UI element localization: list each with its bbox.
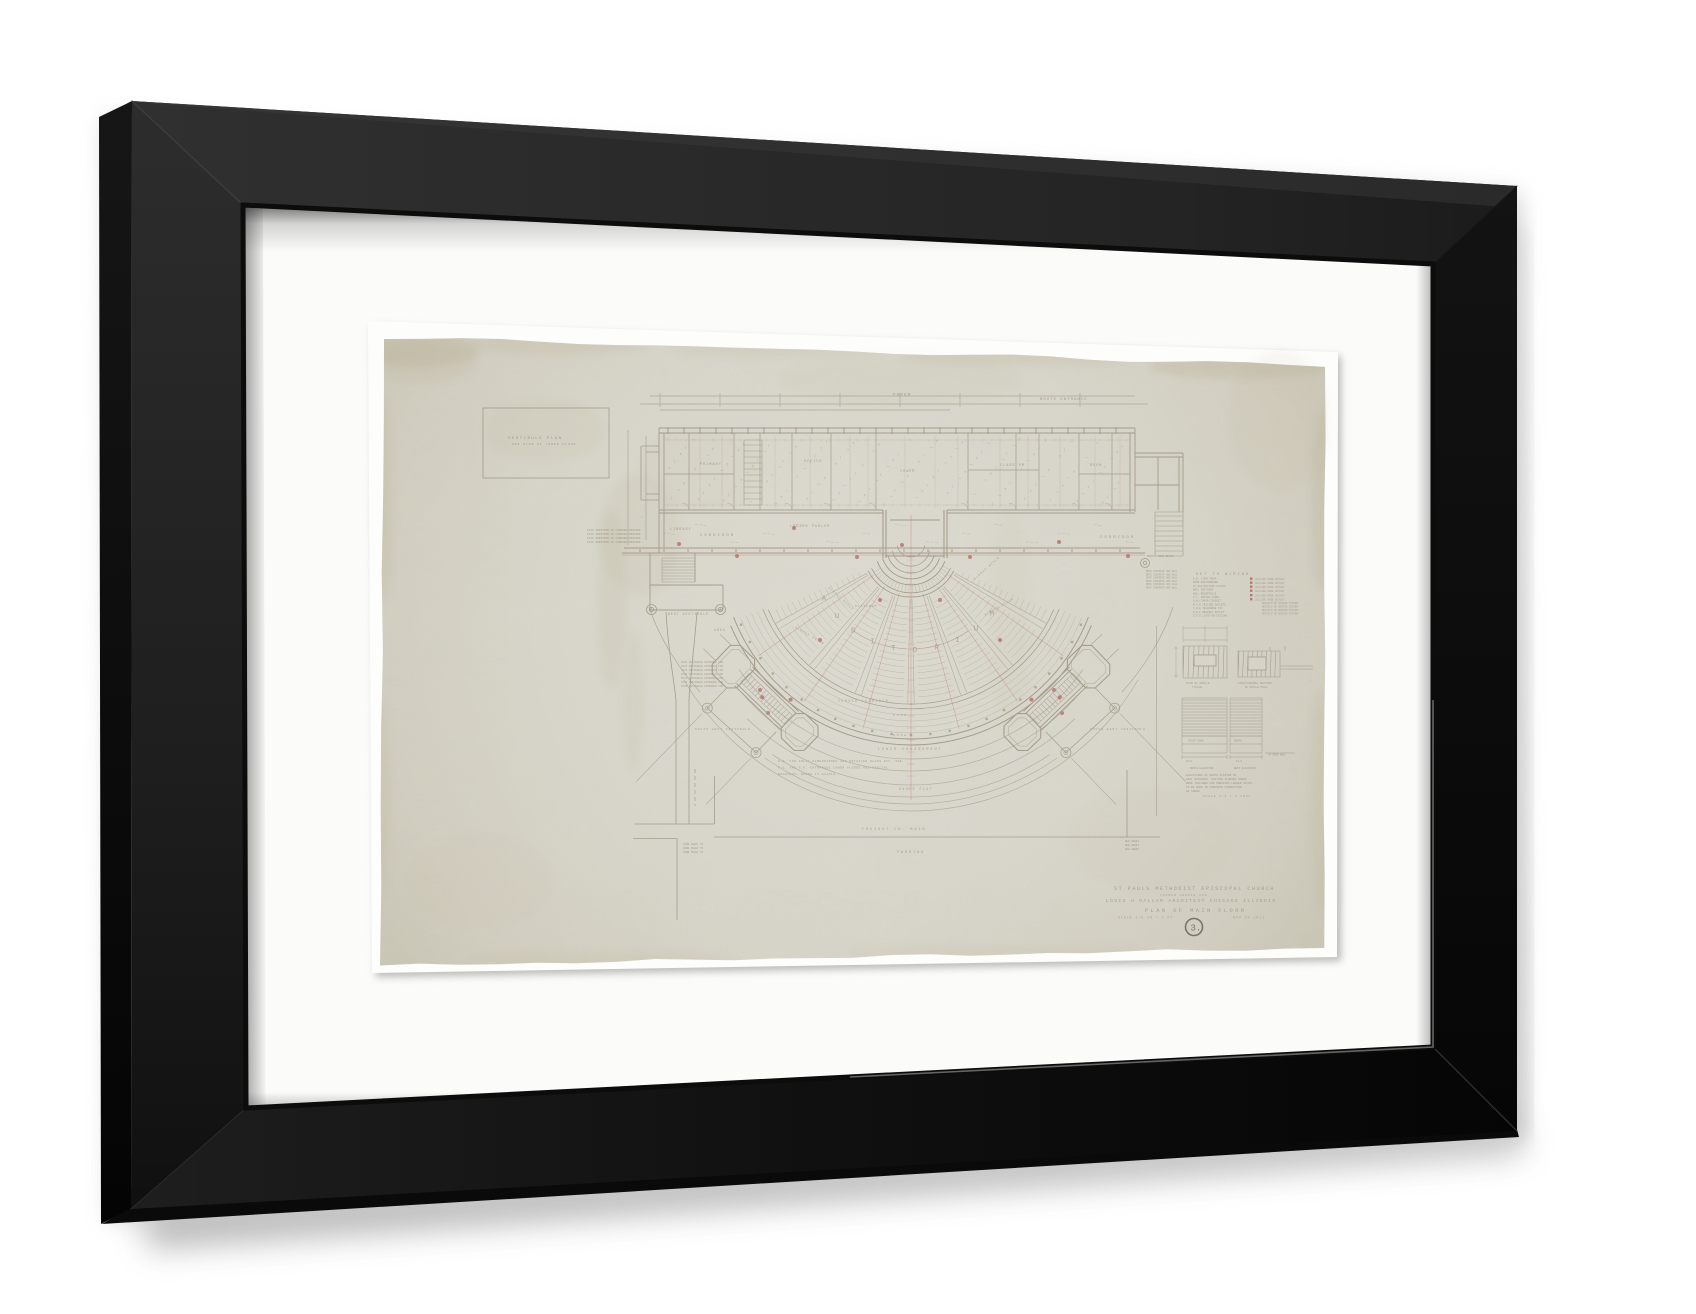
svg-text:WALL RECEPTACLE: WALL RECEPTACLE <box>1193 592 1217 595</box>
svg-text:S.C. SWITCH PANEL: S.C. SWITCH PANEL <box>1193 596 1220 599</box>
svg-text:CEILING ROSE OUTLET: CEILING ROSE OUTLET <box>1255 598 1285 601</box>
svg-text:SOUTH EAST VESTIBULE: SOUTH EAST VESTIBULE <box>1090 728 1146 731</box>
svg-text:THIS ADDITION IS CARRIED PROVI: THIS ADDITION IS CARRIED PROVIDE <box>587 537 641 540</box>
svg-text:PLAN OF GRILLE: PLAN OF GRILLE <box>1186 682 1210 685</box>
svg-text:THIS VESTIBULE ENTRANCE FOR: THIS VESTIBULE ENTRANCE FOR <box>681 669 723 672</box>
svg-text:TO BE MADE IN CONCRETE FOUNDAT: TO BE MADE IN CONCRETE FOUNDATION <box>1186 786 1242 789</box>
svg-text:KNOLL FLAT: KNOLL FLAT <box>899 787 933 791</box>
svg-text:SCALE 1/8 IN = 1 FT: SCALE 1/8 IN = 1 FT <box>1118 916 1173 920</box>
svg-text:ROOM: ROOM <box>1090 464 1102 468</box>
svg-text:LOWER EMBANKMENT: LOWER EMBANKMENT <box>878 748 943 752</box>
svg-text:SOUTH WEST VESTIBULE: SOUTH WEST VESTIBULE <box>695 728 751 731</box>
svg-text:THIS ADDITION IS CARRIED PROVI: THIS ADDITION IS CARRIED PROVIDE <box>587 541 641 544</box>
svg-text:U: U <box>974 626 979 634</box>
svg-text:KEY TO WIRING: KEY TO WIRING <box>1196 573 1250 577</box>
svg-text:TYPICAL: TYPICAL <box>1192 686 1203 689</box>
svg-text:B.C.D CEILING OUTLETS: B.C.D CEILING OUTLETS <box>1193 603 1226 606</box>
svg-text:THIS ADDITION IS CARRIED PROVI: THIS ADDITION IS CARRIED PROVIDE <box>587 529 641 532</box>
svg-text:CORRIDOR: CORRIDOR <box>1100 536 1135 540</box>
svg-text:CLASS RM: CLASS RM <box>1000 464 1025 468</box>
svg-text:HERE INCLUDED FOR PREVIOUS LED: HERE INCLUDED FOR PREVIOUS LEDGER ACCOM- <box>1186 782 1253 785</box>
svg-text:NOTE CONCRETE AND WALL: NOTE CONCRETE AND WALL <box>1146 587 1178 590</box>
svg-text:CURB INLET TO: CURB INLET TO <box>683 843 704 846</box>
svg-text:D: D <box>851 628 856 636</box>
svg-text:12-0: 12-0 <box>1236 760 1243 763</box>
svg-text:T: T <box>891 645 896 653</box>
svg-text:A.B.C MAIN CIRCUIT: A.B.C MAIN CIRCUIT <box>1193 600 1221 603</box>
svg-text:ST PAULS METHODIST EPISCOPAL C: ST PAULS METHODIST EPISCOPAL CHURCH <box>1114 886 1275 892</box>
svg-text:CURVED CORRIDOR: CURVED CORRIDOR <box>838 699 889 703</box>
svg-text:PLAN OF MAIN FLOOR: PLAN OF MAIN FLOOR <box>1145 908 1246 914</box>
svg-text:3.: 3. <box>1191 924 1202 934</box>
svg-text:THIS VESTIBULE ENTRANCE FOR: THIS VESTIBULE ENTRANCE FOR <box>681 681 723 684</box>
svg-text:U: U <box>835 613 840 621</box>
svg-text:O: O <box>913 647 918 655</box>
svg-text:WEST ELEVATION: WEST ELEVATION <box>1234 767 1256 770</box>
svg-text:PLATFORM: PLATFORM <box>855 605 877 608</box>
svg-text:VESTIBULE PLAN: VESTIBULE PLAN <box>508 437 563 441</box>
svg-text:DOOR: DOOR <box>893 714 908 717</box>
svg-text:ROSE: ROSE <box>893 734 908 737</box>
svg-text:PARKING: PARKING <box>897 851 925 855</box>
svg-text:NOV 20 1911: NOV 20 1911 <box>1233 916 1265 920</box>
svg-text:I: I <box>955 637 960 645</box>
svg-text:CURB INLET TO: CURB INLET TO <box>683 847 704 850</box>
svg-text:LIBRARY: LIBRARY <box>670 528 692 532</box>
svg-text:CEILING ROSE OUTLET: CEILING ROSE OUTLET <box>1255 582 1285 585</box>
svg-text:LOUIS H DALLAM ARCHITECT CHICA: LOUIS H DALLAM ARCHITECT CHICAGO ILLINOI… <box>1106 898 1276 904</box>
svg-text:CEILING ROSE OUTLET: CEILING ROSE OUTLET <box>1255 586 1285 589</box>
svg-text:AREA: AREA <box>714 628 726 632</box>
svg-text:DRAWINGS. WHERE IT EXISTS.: DRAWINGS. WHERE IT EXISTS. <box>778 773 838 776</box>
svg-text:CEILING ROSE OUTLET: CEILING ROSE OUTLET <box>1255 590 1285 593</box>
svg-text:DETAILS OF WIRING SYSTEM: DETAILS OF WIRING SYSTEM <box>1262 613 1299 616</box>
svg-text:C.D.E TELEPHONE SYS: C.D.E TELEPHONE SYS <box>1193 607 1223 610</box>
svg-text:AT MULTIPLYING LIGHTS: AT MULTIPLYING LIGHTS <box>1193 585 1226 588</box>
svg-text:AT SIDE WALL: AT SIDE WALL <box>1268 754 1287 757</box>
svg-text:I: I <box>870 639 875 647</box>
svg-text:SEE SHEET: SEE SHEET <box>1125 844 1139 847</box>
svg-text:ELEVATIONS OF SOUTH PLASTER OF: ELEVATIONS OF SOUTH PLASTER OF <box>1186 774 1237 777</box>
svg-text:CORNER KEDZIE AVE: CORNER KEDZIE AVE <box>1160 894 1208 897</box>
svg-text:SUPPLY ROOM BELOW: SUPPLY ROOM BELOW <box>1147 555 1174 558</box>
svg-text:LADIES PARLOR: LADIES PARLOR <box>790 525 830 529</box>
svg-text:MAIN SWITCHBOARD: MAIN SWITCHBOARD <box>1193 581 1218 584</box>
svg-text:NORTH ELEVATION: NORTH ELEVATION <box>1190 767 1214 770</box>
svg-text:THIS ADDITION IS CARRIED PROVI: THIS ADDITION IS CARRIED PROVIDE <box>587 533 641 536</box>
svg-text:D.E.F BRACKET OUTLET: D.E.F BRACKET OUTLET <box>1193 611 1225 614</box>
svg-text:THIS VESTIBULE ENTRANCE FOR: THIS VESTIBULE ENTRANCE FOR <box>681 665 723 668</box>
svg-text:CORRIDOR: CORRIDOR <box>700 534 735 538</box>
svg-text:OFFICE: OFFICE <box>804 460 823 464</box>
svg-text:SEE PLAN OF LOWER FLOOR: SEE PLAN OF LOWER FLOOR <box>512 443 576 446</box>
svg-text:WEST VESTIBULE: WEST VESTIBULE <box>668 612 709 616</box>
svg-text:EAST ENTRANCE. SEATING SCHEMES: EAST ENTRANCE. SEATING SCHEMES SHOWN <box>1186 778 1247 781</box>
svg-text:PRIMARY: PRIMARY <box>700 463 722 467</box>
svg-text:CEILING ROSE OUTLET: CEILING ROSE OUTLET <box>1255 594 1285 597</box>
svg-text:16-0: 16-0 <box>1186 760 1193 763</box>
svg-text:THIS VESTIBULE ENTRANCE FOR: THIS VESTIBULE ENTRANCE FOR <box>681 661 723 664</box>
svg-text:A: A <box>822 596 827 604</box>
svg-text:CEILING ROSE OUTLET: CEILING ROSE OUTLET <box>1255 578 1285 581</box>
svg-text:CHOIR ROOM: CHOIR ROOM <box>1188 740 1204 743</box>
svg-text:R: R <box>935 644 940 652</box>
svg-text:E.F.G LIGHT ON CEILING: E.F.G LIGHT ON CEILING <box>1193 615 1228 618</box>
svg-text:FOYER: FOYER <box>893 392 912 398</box>
svg-text:ROUTE ENTRANCE: ROUTE ENTRANCE <box>1040 398 1088 402</box>
svg-text:N.B. FOR FULLY DIMENSIONED AND: N.B. FOR FULLY DIMENSIONED AND DETAILED … <box>778 760 902 763</box>
svg-text:OF GRILLE STACK: OF GRILLE STACK <box>1245 686 1268 689</box>
svg-text:FREIGHT CO. MAIN: FREIGHT CO. MAIN <box>862 828 927 832</box>
svg-text:SEE SHEET: SEE SHEET <box>1125 840 1139 843</box>
svg-text:A.B. LIGHT MAIN: A.B. LIGHT MAIN <box>1193 578 1217 581</box>
svg-text:TOWER: TOWER <box>900 470 916 474</box>
svg-text:CURB INLET TO: CURB INLET TO <box>683 851 704 854</box>
svg-text:N.E. AND S.E. ENTRANCES LOWER: N.E. AND S.E. ENTRANCES LOWER FLOORS AND… <box>778 767 888 770</box>
svg-text:ORGAN: ORGAN <box>1234 740 1242 743</box>
svg-text:LONGITUDINAL SECTION: LONGITUDINAL SECTION <box>1238 682 1272 685</box>
svg-text:AS SHOWN: AS SHOWN <box>1186 790 1200 793</box>
svg-text:SCALE 3/4 = 1 FOOT: SCALE 3/4 = 1 FOOT <box>1203 794 1251 798</box>
svg-text:WALL SWITCHES: WALL SWITCHES <box>1193 589 1214 592</box>
svg-text:SEE SHEET: SEE SHEET <box>1125 848 1139 851</box>
